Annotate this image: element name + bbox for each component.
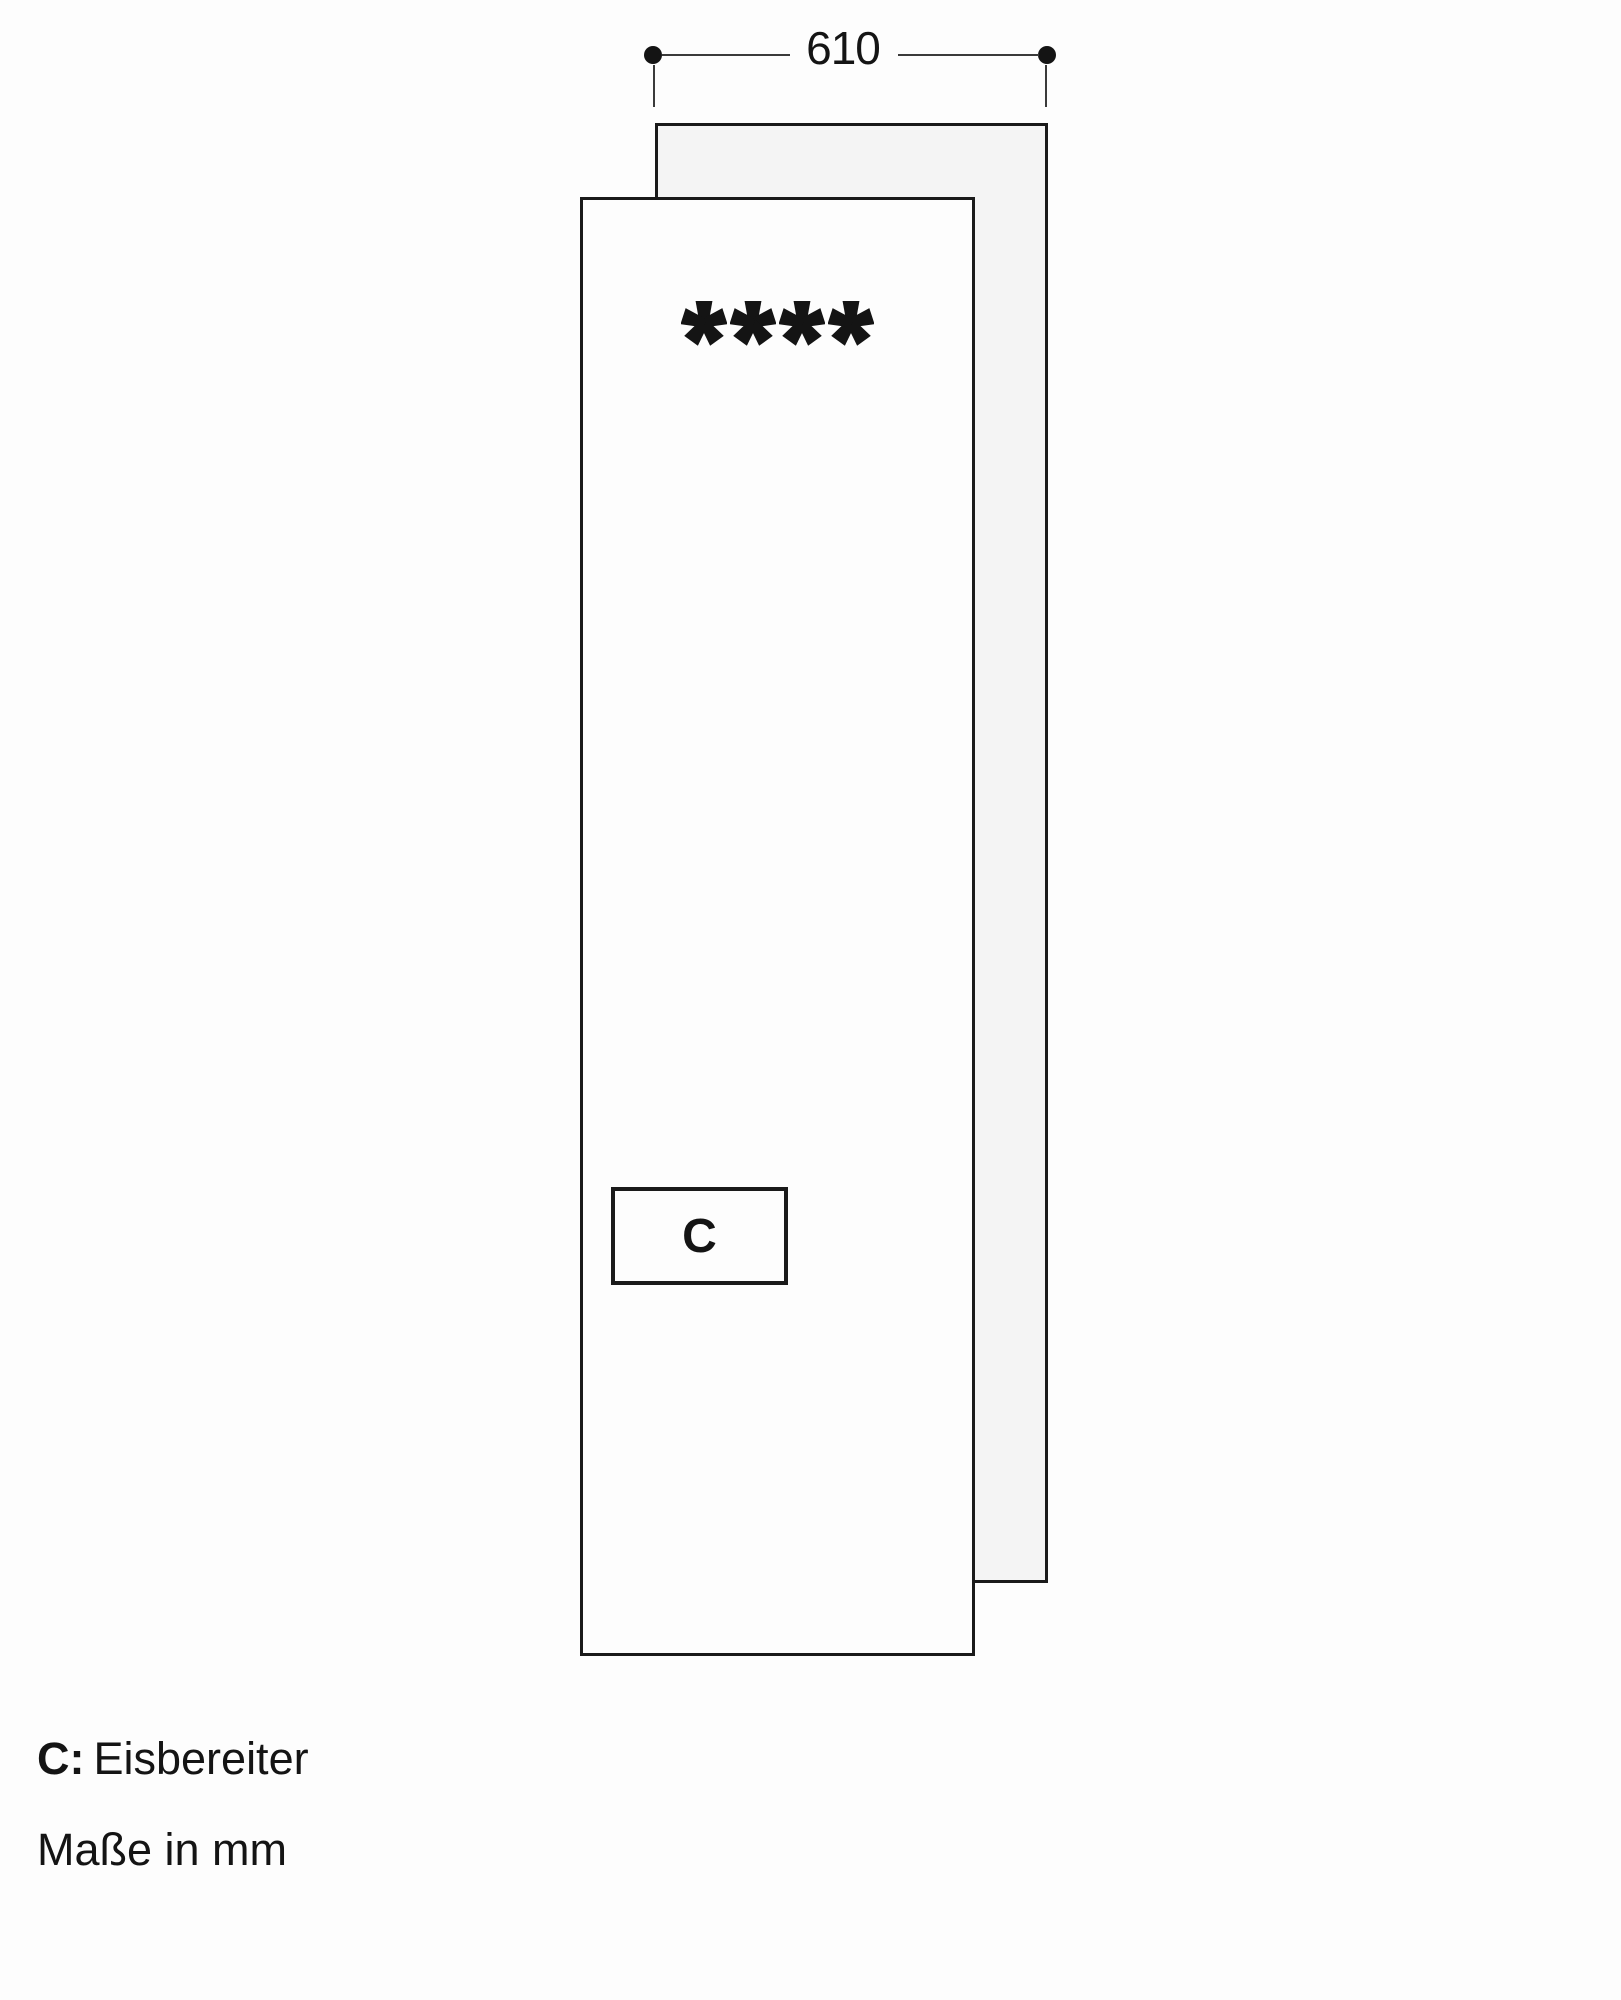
freezer-star-icon — [779, 300, 825, 346]
dimension-extension-line-left — [653, 65, 655, 107]
dimension-line-left-segment — [662, 54, 790, 56]
ice-maker-label-box: C — [611, 1187, 788, 1285]
dimension-endpoint-right-dot — [1038, 46, 1056, 64]
dimension-line-right-segment — [898, 54, 1039, 56]
ice-maker-label: C — [682, 1209, 717, 1264]
dimensions-unit-note: Maße in mm — [37, 1824, 287, 1876]
freezer-star-icon — [828, 300, 874, 346]
legend-entry: C:Eisbereiter — [37, 1733, 309, 1785]
appliance-dimension-diagram: 610 — [0, 0, 1621, 2000]
dimension-extension-line-right — [1045, 65, 1047, 107]
legend-label: Eisbereiter — [93, 1733, 308, 1784]
freezer-star-icon — [681, 300, 727, 346]
freezer-star-icon — [730, 300, 776, 346]
freezer-star-rating — [583, 300, 972, 346]
legend-key: C: — [37, 1733, 84, 1784]
front-door-panel — [580, 197, 975, 1656]
dimension-endpoint-left-dot — [644, 46, 662, 64]
dimension-value: 610 — [783, 25, 903, 71]
